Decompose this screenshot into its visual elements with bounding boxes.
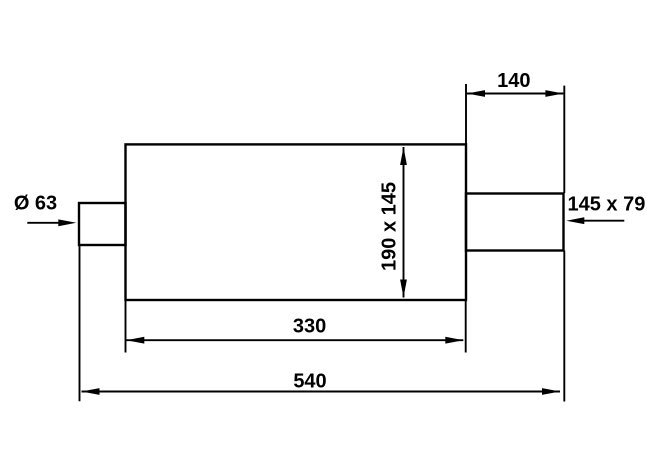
svg-text:330: 330 xyxy=(293,315,326,337)
svg-text:145 x 79: 145 x 79 xyxy=(568,194,646,216)
svg-text:Ø 63: Ø 63 xyxy=(14,193,57,215)
svg-text:140: 140 xyxy=(497,70,530,92)
svg-text:540: 540 xyxy=(293,371,326,393)
svg-text:190 x 145: 190 x 145 xyxy=(378,182,400,271)
